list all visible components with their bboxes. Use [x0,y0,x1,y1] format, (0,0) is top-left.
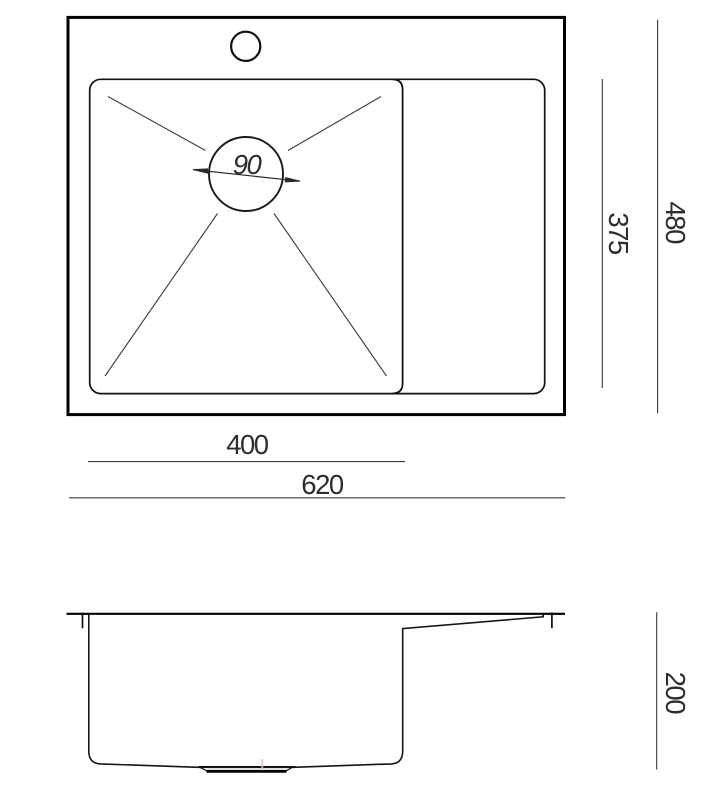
svg-text:90: 90 [233,149,263,180]
svg-text:200: 200 [660,672,691,715]
svg-text:620: 620 [301,469,344,500]
svg-text:375: 375 [603,212,634,255]
svg-text:400: 400 [226,429,269,460]
svg-text:480: 480 [660,202,691,245]
